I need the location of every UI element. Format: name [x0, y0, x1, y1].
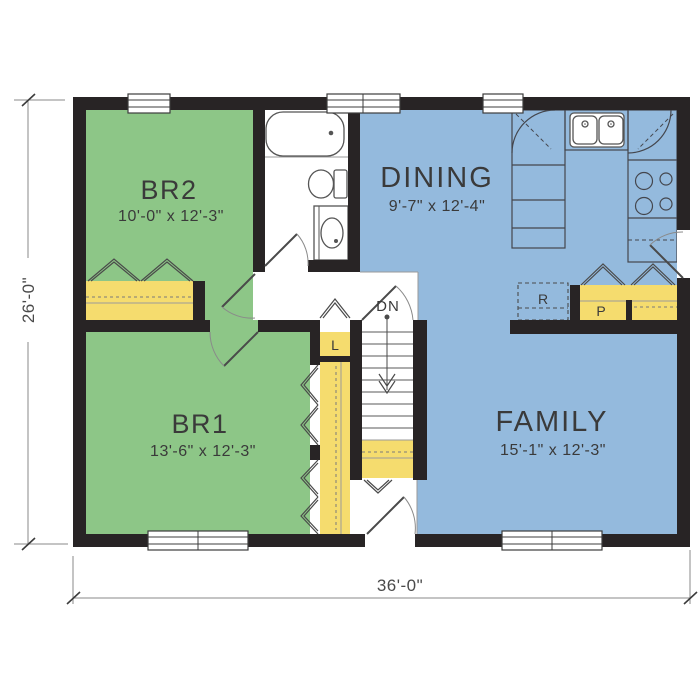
window-family [502, 531, 602, 550]
overall-depth-label: 26'-0" [19, 277, 38, 323]
floor-plan-page: BR2 10'-0" x 12'-3" DINING 9'-7" x 12'-4… [0, 0, 700, 700]
sink-basin-right [599, 116, 623, 144]
room-dims-br2: 10'-0" x 12'-3" [118, 208, 224, 225]
wall-stairs-right [413, 320, 427, 480]
understair-closet [362, 440, 413, 478]
refrigerator-label: R [538, 291, 548, 307]
br2-closet [86, 281, 193, 320]
room-dims-dining: 9'-7" x 12'-4" [389, 198, 486, 215]
overall-width-label: 36'-0" [377, 576, 423, 595]
faucet-dot [610, 123, 612, 125]
wall-bath-right [348, 110, 360, 272]
wall-linen-stub [310, 320, 320, 365]
wall-pantry-stub [570, 285, 580, 320]
room-fill-family-edge [417, 480, 427, 534]
dimension-bottom: 36'-0" [67, 550, 697, 604]
room-label-br2: BR2 [140, 175, 197, 205]
wall-right [677, 97, 690, 547]
room-dims-br1: 13'-6" x 12'-3" [150, 443, 256, 460]
wall-kitchen-family [510, 320, 677, 334]
vanity-sink [321, 218, 343, 248]
pantry-label: P [596, 303, 605, 319]
sink-basin-left [573, 116, 597, 144]
wall-stairs-left [350, 320, 362, 480]
room-label-family: FAMILY [496, 406, 609, 438]
window-br1 [148, 531, 248, 550]
wall-br2-closet-stub [193, 281, 205, 320]
window-dining [327, 94, 400, 113]
side-door-opening [677, 230, 690, 278]
dimension-left: 26'-0" [14, 94, 68, 550]
room-dims-family: 15'-1" x 12'-3" [500, 442, 606, 459]
tub-drain [329, 131, 334, 136]
wall-closet-stub [310, 445, 320, 460]
wall-bath-left [253, 110, 265, 272]
room-fill-passage [427, 320, 510, 334]
room-fill-foyer [352, 480, 417, 534]
faucet-dot [584, 123, 586, 125]
br1-door-opening [210, 320, 258, 332]
room-label-dining: DINING [380, 162, 494, 194]
linen-closet-label: L [331, 337, 339, 353]
window-br2 [128, 94, 170, 113]
front-door-opening [365, 534, 415, 547]
pantry-divider [626, 300, 632, 320]
stairs-dn-label: DN [376, 298, 400, 315]
room-label-br1: BR1 [171, 409, 228, 439]
toilet-bowl [309, 170, 334, 198]
wall-bedroom-divider [73, 320, 310, 332]
window-kitchen [483, 94, 523, 113]
vanity-drain [334, 239, 338, 243]
floor-plan: BR2 10'-0" x 12'-3" DINING 9'-7" x 12'-4… [0, 0, 700, 700]
linen-closet-divider [320, 356, 350, 362]
wall-bath-south [308, 260, 360, 272]
br1-closet [320, 362, 350, 534]
toilet-tank [334, 170, 347, 198]
